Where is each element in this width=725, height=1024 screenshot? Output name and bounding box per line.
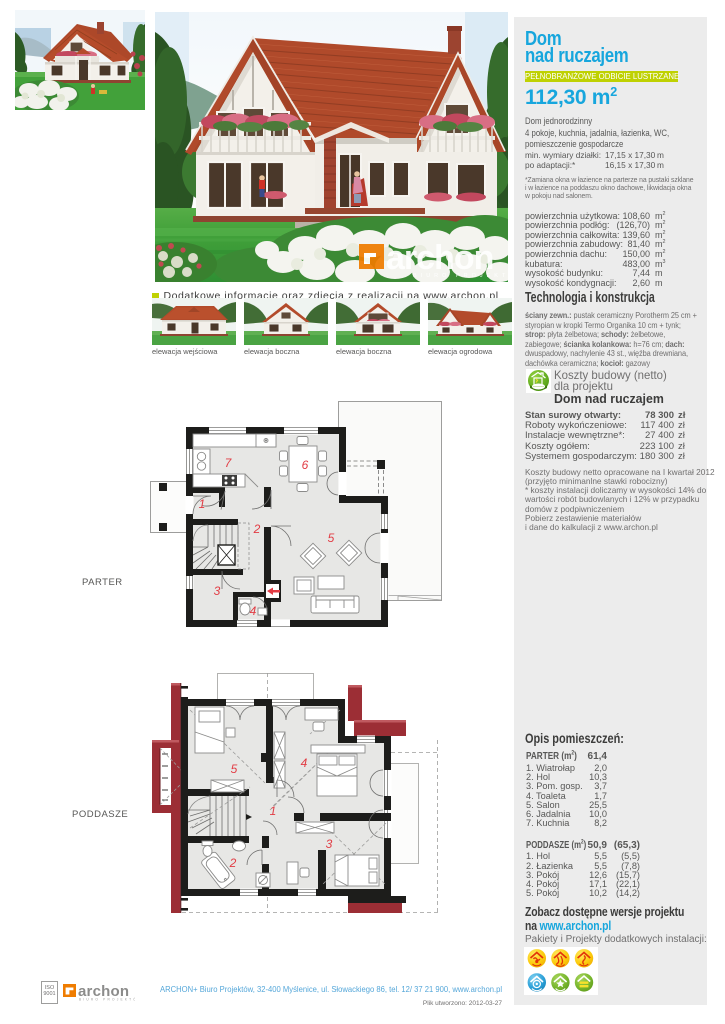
svg-text:BIURO PROJEKTÓW: BIURO PROJEKTÓW [413,272,508,279]
svg-text:2: 2 [253,522,261,536]
svg-text:BIURO PROJEKTÓW: BIURO PROJEKTÓW [79,997,135,1002]
svg-text:5: 5 [328,531,335,545]
svg-text:3: 3 [326,837,333,851]
svg-text:archon: archon [386,239,493,277]
svg-text:6: 6 [302,458,309,472]
svg-text:1: 1 [199,497,206,511]
svg-text:5: 5 [231,762,238,776]
svg-text:4: 4 [250,604,257,618]
svg-text:2: 2 [229,856,237,870]
svg-text:4: 4 [301,756,308,770]
svg-text:1: 1 [270,804,277,818]
svg-text:3: 3 [214,584,221,598]
